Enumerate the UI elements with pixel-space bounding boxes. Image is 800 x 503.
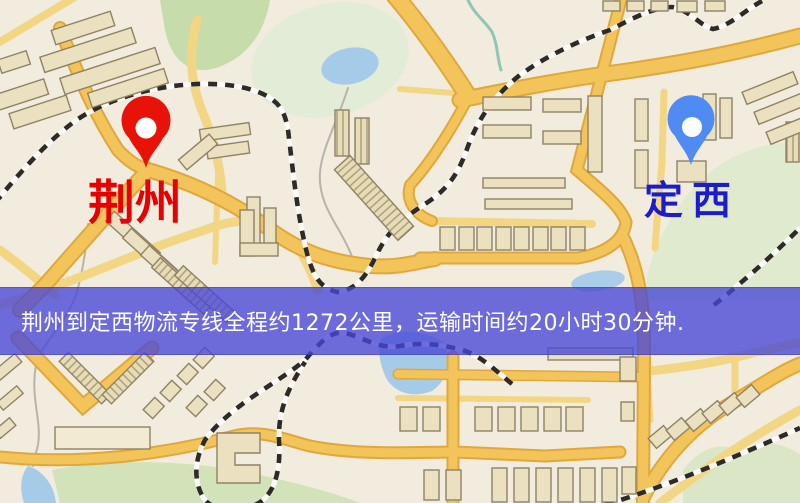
blue-pin-icon[interactable] (668, 95, 715, 165)
route-info-text: 荆州到定西物流专线全程约1272公里，运输时间约20小时30分钟. (0, 305, 684, 337)
map-canvas[interactable] (0, 0, 800, 503)
destination-city-label: 定西 (644, 182, 740, 221)
logistics-route-map: 荆州 定西 荆州到定西物流专线全程约1272公里，运输时间约20小时30分钟. (0, 0, 800, 503)
route-info-banner: 荆州到定西物流专线全程约1272公里，运输时间约20小时30分钟. (0, 287, 800, 355)
origin-city-label: 荆州 (88, 180, 182, 227)
